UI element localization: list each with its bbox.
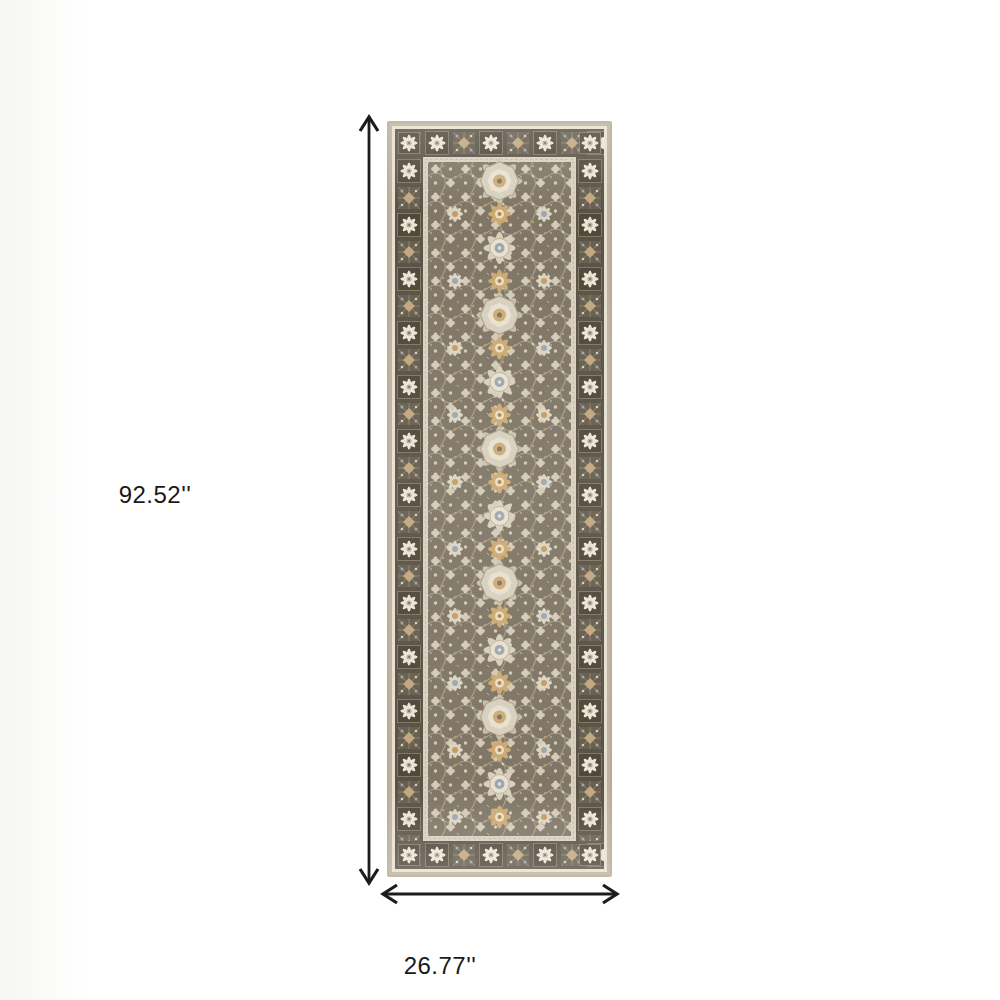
height-dimension-label: 92.52'' xyxy=(90,481,220,509)
product-dimension-figure: 92.52'' 26.77'' xyxy=(0,0,1000,1000)
width-dimension-label: 26.77'' xyxy=(375,952,505,980)
height-dimension-arrow xyxy=(358,112,380,888)
rug-image xyxy=(387,121,612,877)
width-dimension-arrow xyxy=(376,883,624,905)
